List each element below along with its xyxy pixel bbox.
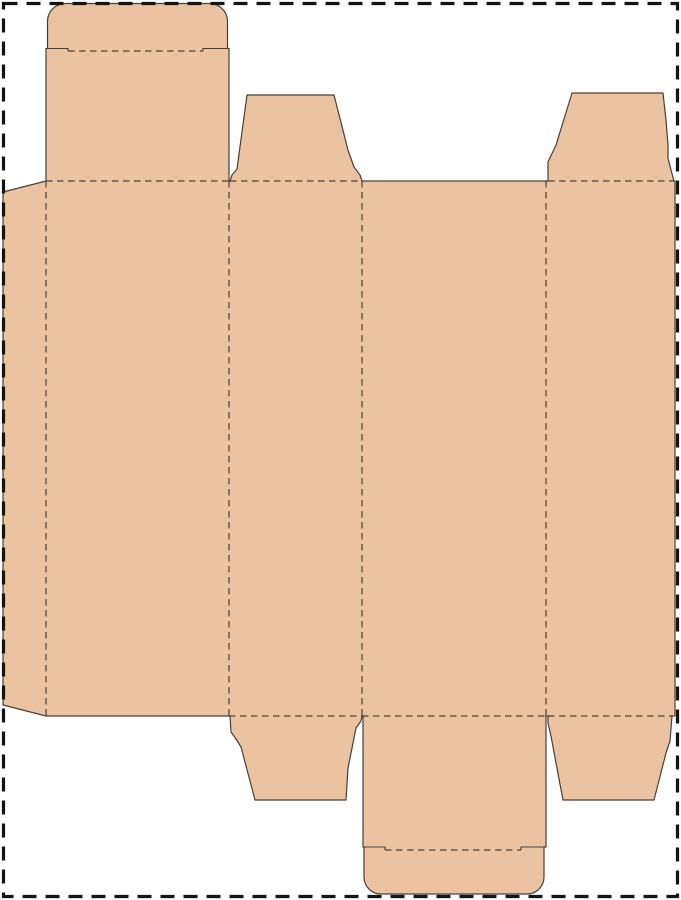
dieline-page — [0, 0, 681, 900]
dust-flap-bottom-right — [548, 716, 672, 800]
tuck-flap-top — [46, 49, 229, 182]
glue-flap — [3, 181, 46, 716]
tuck-flap-bottom — [363, 716, 546, 847]
panel-3 — [362, 181, 546, 716]
panel-1 — [46, 181, 229, 716]
panel-4 — [546, 181, 675, 716]
panel-2 — [229, 181, 362, 716]
tuck-tab-top — [48, 3, 228, 51]
dieline-drawing — [0, 0, 681, 900]
tuck-tab-bottom — [364, 847, 544, 894]
